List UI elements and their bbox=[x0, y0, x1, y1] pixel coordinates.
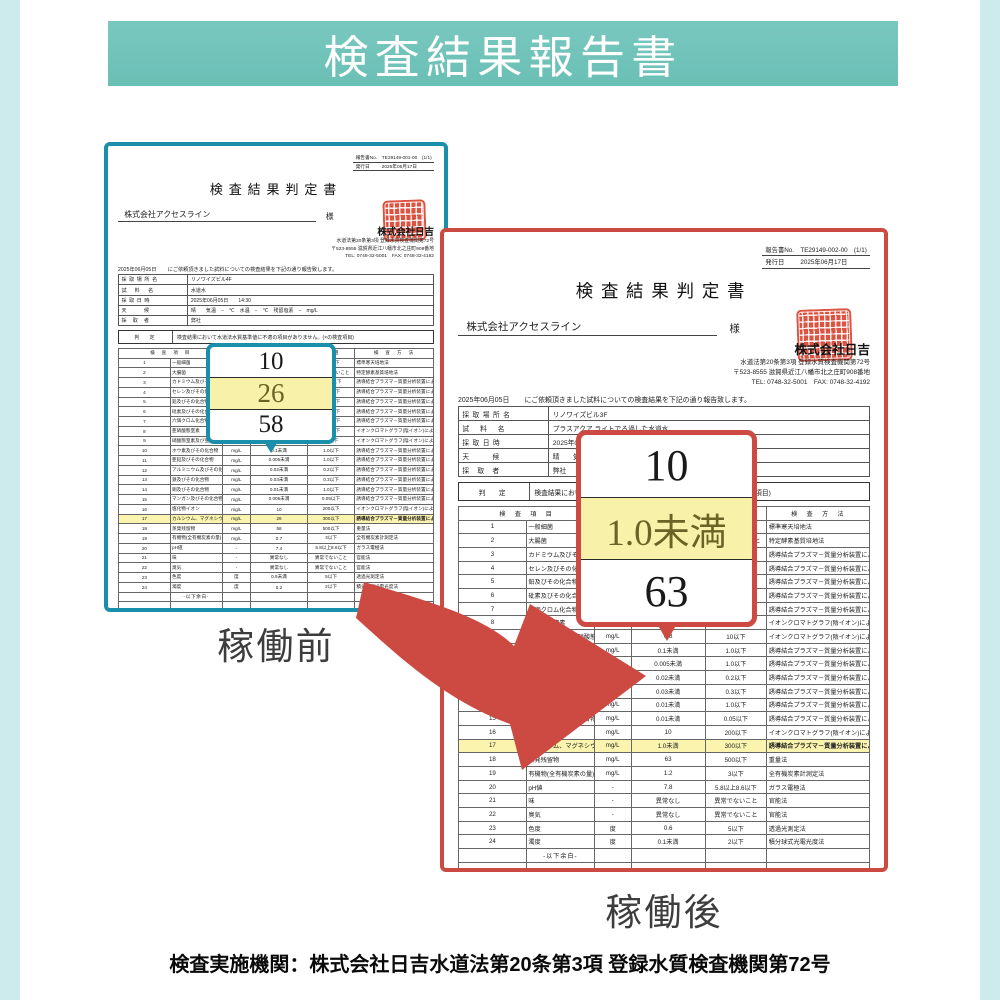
cell-item: アルミニウム及びその化合物 bbox=[526, 671, 594, 685]
cell-result: 1.2 bbox=[631, 766, 705, 780]
cell-item: マンガン及びその化合物 bbox=[526, 712, 594, 726]
cell-unit: mg/L bbox=[222, 504, 250, 514]
cell-method: 重量法 bbox=[767, 753, 870, 767]
cell-n: 3 bbox=[119, 378, 171, 388]
cell-unit: mg/L bbox=[222, 446, 250, 456]
cell-result: 0.1未満 bbox=[631, 643, 705, 657]
cell-unit: mg/L bbox=[222, 495, 250, 505]
cell-n: 1 bbox=[459, 520, 527, 534]
cell-item: 蒸発残留物 bbox=[170, 524, 222, 534]
info-label: 採 取 者 bbox=[459, 463, 549, 477]
cell-n: 24 bbox=[119, 582, 171, 592]
cell-method: 透過光測定法 bbox=[355, 573, 434, 583]
cell-result: 0.01未満 bbox=[631, 712, 705, 726]
intro-line: 2025年06月05日 にご依頼頂きました試料についての検査結果を下記の通り報告… bbox=[458, 394, 870, 404]
table-row: -以下余白- bbox=[119, 592, 434, 602]
cell-std bbox=[307, 602, 354, 611]
cell-result: 0.005未満 bbox=[251, 456, 308, 466]
cell-result: 0.02未満 bbox=[631, 671, 705, 685]
cell-unit: mg/L bbox=[222, 485, 250, 495]
table-row: -以下余白- bbox=[459, 849, 870, 863]
cell-method bbox=[767, 862, 870, 872]
intro-text: にご依頼頂きました試料についての検査結果を下記の通り報告致します。 bbox=[525, 394, 751, 404]
table-row: 19有機物(全有機炭素の量)mg/L1.23以下全有機炭素計測定法 bbox=[459, 766, 870, 780]
cell-n bbox=[119, 592, 171, 602]
issue-date-value: 2025年06月17日 bbox=[379, 162, 434, 171]
info-row: 採 取 者弊社 bbox=[119, 316, 434, 326]
cell-result: 異常なし bbox=[251, 563, 308, 573]
cell-method: 官能法 bbox=[355, 563, 434, 573]
laboratory-block: 株式会社日吉 水道法第20条第3項 登録水質検査機関第72号〒523-8555 … bbox=[118, 224, 434, 261]
cell-unit bbox=[594, 862, 631, 872]
cell-method: イオンクロマトグラフ(陰イオン)による一斉分析法 bbox=[767, 725, 870, 739]
cell-unit bbox=[594, 849, 631, 863]
highlight-callout-before: 102658 bbox=[206, 343, 336, 444]
cell-unit: mg/L bbox=[594, 725, 631, 739]
cell-method bbox=[767, 849, 870, 863]
cell-method: 誘導結合プラズマ－質量分析装置による一斉分析法 bbox=[767, 561, 870, 575]
callout-value: 10 bbox=[581, 435, 752, 497]
cell-n: 16 bbox=[119, 504, 171, 514]
info-value: リノワイズビル3F bbox=[549, 407, 870, 421]
intro-date: 2025年06月05日 bbox=[118, 266, 156, 273]
cell-item: ホウ素及びその化合物 bbox=[526, 643, 594, 657]
cell-std: 異常でないこと bbox=[307, 563, 354, 573]
cell-unit: mg/L bbox=[594, 753, 631, 767]
cell-n: 9 bbox=[119, 436, 171, 446]
cell-unit: 度 bbox=[594, 821, 631, 835]
table-row: 13鉄及びその化合物mg/L0.03未満0.3以下誘導結合プラズマ－質量分析装置… bbox=[119, 475, 434, 485]
cell-result: 7.8 bbox=[631, 780, 705, 794]
cell-std bbox=[307, 611, 354, 612]
laboratory-name: 株式会社日吉 bbox=[458, 339, 870, 358]
cell-n: 8 bbox=[459, 616, 527, 630]
cell-item: -以下余白- bbox=[170, 592, 222, 602]
col-header-method: 検 査 方 法 bbox=[767, 506, 870, 520]
cell-std: 5以下 bbox=[307, 573, 354, 583]
cell-unit: - bbox=[222, 543, 250, 553]
cell-unit: - bbox=[594, 780, 631, 794]
cell-std bbox=[705, 862, 767, 872]
cell-method: 特定酵素基質培地法 bbox=[767, 534, 870, 548]
cell-std: 異常でないこと bbox=[307, 553, 354, 563]
table-row: 15マンガン及びその化合物mg/L0.01未満0.05以下誘導結合プラズマ－質量… bbox=[459, 712, 870, 726]
intro-text: にご依頼頂きました試料についての検査結果を下記の通り報告致します。 bbox=[168, 266, 337, 273]
table-row: 24濁度度0.22以下積分球式光電光度法 bbox=[119, 582, 434, 592]
table-row: 22臭気-異常なし異常でないこと官能法 bbox=[119, 563, 434, 573]
cell-n: 12 bbox=[459, 671, 527, 685]
cell-item bbox=[170, 611, 222, 612]
table-row: 10ホウ素及びその化合物mg/L0.1未満1.0以下誘導結合プラズマ－質量分析装… bbox=[459, 643, 870, 657]
cell-std: 0.05以下 bbox=[307, 495, 354, 505]
cell-n: 14 bbox=[119, 485, 171, 495]
page-title: 検査結果報告書 bbox=[323, 21, 682, 86]
cell-std: 1.0以下 bbox=[705, 657, 767, 671]
cell-n: 18 bbox=[119, 524, 171, 534]
cell-result: 0.2 bbox=[251, 582, 308, 592]
info-label: 天 候 bbox=[459, 449, 549, 463]
callout-pointer bbox=[656, 622, 678, 641]
cell-n: 20 bbox=[459, 780, 527, 794]
cell-n: 16 bbox=[459, 725, 527, 739]
cell-n: 11 bbox=[459, 657, 527, 671]
table-row: 21味-異常なし異常でないこと官能法 bbox=[459, 794, 870, 808]
cell-result: 0.7 bbox=[251, 534, 308, 544]
info-row: 採 取 場 所 名リノワイズビル3F bbox=[459, 407, 870, 421]
info-row: 天 候晴 気温 − ℃ 水温 − ℃ 残留塩素 − mg/L bbox=[119, 305, 434, 315]
client-honorific: 様 bbox=[326, 211, 334, 222]
cell-method bbox=[355, 602, 434, 611]
cell-result: 63 bbox=[631, 753, 705, 767]
address-line: 水道法第20条第3項 登録水質検査機関第72号 bbox=[458, 358, 870, 368]
table-row bbox=[119, 602, 434, 611]
info-value: 2025年06月05日 14:30 bbox=[188, 295, 434, 305]
highlight-callout-after: 101.0未満63 bbox=[576, 430, 757, 627]
cell-n bbox=[119, 602, 171, 611]
cell-n: 17 bbox=[459, 739, 527, 753]
info-label: 採 取 場 所 名 bbox=[119, 275, 188, 285]
cell-method: 全有機炭素計測定法 bbox=[355, 534, 434, 544]
cell-method: 誘導結合プラズマ－質量分析装置による一斉分析法 bbox=[355, 446, 434, 456]
cell-result: 1.0未満 bbox=[631, 739, 705, 753]
laboratory-block: 株式会社日吉 水道法第20条第3項 登録水質検査機関第72号〒523-8555 … bbox=[458, 339, 870, 388]
cell-method: 官能法 bbox=[355, 553, 434, 563]
table-row: 16塩化物イオンmg/L10200以下イオンクロマトグラフ(陰イオン)による一斉… bbox=[119, 504, 434, 514]
cell-n bbox=[459, 849, 527, 863]
cell-result bbox=[251, 611, 308, 612]
cell-unit: mg/L bbox=[222, 524, 250, 534]
cell-n: 21 bbox=[459, 794, 527, 808]
cell-item: 臭気 bbox=[526, 808, 594, 822]
table-row: 17カルシウム、マグネシウム等(硬度)mg/L1.0未満300以下誘導結合プラズ… bbox=[459, 739, 870, 753]
cell-method: 標準寒天培地法 bbox=[355, 358, 434, 368]
issue-date-value: 2025年06月17日 bbox=[797, 256, 870, 268]
cell-item: ホウ素及びその化合物 bbox=[170, 446, 222, 456]
issue-date-label: 発行日 bbox=[762, 256, 797, 268]
cell-n: 13 bbox=[459, 684, 527, 698]
cell-result bbox=[251, 592, 308, 602]
table-row: 12アルミニウム及びその化合物mg/L0.02未満0.2以下誘導結合プラズマ－質… bbox=[119, 465, 434, 475]
cell-method: 官能法 bbox=[767, 794, 870, 808]
cell-method: 誘導結合プラズマ－質量分析装置による一斉分析法 bbox=[355, 465, 434, 475]
info-label: 採 取 場 所 名 bbox=[459, 407, 549, 421]
info-value: 弊社 bbox=[188, 316, 434, 326]
cell-item: 亜鉛及びその化合物 bbox=[526, 657, 594, 671]
cell-method: 積分球式光電光度法 bbox=[767, 835, 870, 849]
cell-method bbox=[355, 592, 434, 602]
cell-n: 2 bbox=[459, 534, 527, 548]
info-label: 採 取 者 bbox=[119, 316, 188, 326]
cell-std: 異常でないこと bbox=[705, 794, 767, 808]
cell-std: 300以下 bbox=[705, 739, 767, 753]
report-no-label: 報告書No. bbox=[353, 154, 379, 162]
cell-n: 20 bbox=[119, 543, 171, 553]
info-value: 晴 気温 − ℃ 水温 − ℃ 残留塩素 − mg/L bbox=[188, 305, 434, 315]
cell-method: ガラス電極法 bbox=[767, 780, 870, 794]
table-row bbox=[459, 862, 870, 872]
intro-date: 2025年06月05日 bbox=[458, 394, 509, 404]
cell-n: 4 bbox=[459, 561, 527, 575]
judgement-text: 検査結果において水道法水質基準値に不適の項目がありません。(×の検査項目) bbox=[173, 331, 357, 343]
cell-item: 硝酸態窒素及び亜硝酸態窒素 bbox=[526, 630, 594, 644]
cell-result bbox=[631, 849, 705, 863]
info-label: 試 料 名 bbox=[459, 421, 549, 435]
cell-result: 10 bbox=[631, 725, 705, 739]
cell-n: 23 bbox=[459, 821, 527, 835]
cell-result: 7.4 bbox=[251, 543, 308, 553]
cell-result: 0.01未満 bbox=[251, 485, 308, 495]
cell-method: 誘導結合プラズマ－質量分析装置による一斉分析法 bbox=[355, 514, 434, 524]
col-header-method: 検 査 方 法 bbox=[355, 348, 434, 358]
cell-unit bbox=[222, 592, 250, 602]
cell-unit: mg/L bbox=[594, 671, 631, 685]
cell-item: 色度 bbox=[170, 573, 222, 583]
callout-value: 58 bbox=[210, 410, 332, 440]
client-name: 株式会社アクセスライン bbox=[118, 209, 316, 222]
cell-std: 200以下 bbox=[705, 725, 767, 739]
cell-std: 5以下 bbox=[705, 821, 767, 835]
info-value: リノワイズビル4F bbox=[188, 275, 434, 285]
cell-item: カルシウム、マグネシウム等(硬度) bbox=[526, 739, 594, 753]
cell-unit bbox=[222, 602, 250, 611]
cell-unit: mg/L bbox=[594, 712, 631, 726]
table-row: 18蒸発残留物mg/L58500以下重量法 bbox=[119, 524, 434, 534]
cell-method: 誘導結合プラズマ－質量分析装置による一斉分析法 bbox=[767, 602, 870, 616]
cell-item: カルシウム、マグネシウム等(硬度) bbox=[170, 514, 222, 524]
cell-result bbox=[631, 862, 705, 872]
cell-unit: 度 bbox=[222, 573, 250, 583]
callout-value: 63 bbox=[581, 560, 752, 622]
cell-method: 誘導結合プラズマ－質量分析装置による一斉分析法 bbox=[767, 575, 870, 589]
table-row: 20pH値-7.85.8以上8.6以下ガラス電極法 bbox=[459, 780, 870, 794]
info-label: 採 取 日 時 bbox=[459, 435, 549, 449]
cell-unit: mg/L bbox=[222, 534, 250, 544]
cell-result: 0.03未満 bbox=[631, 684, 705, 698]
cell-std: 1.0以下 bbox=[307, 446, 354, 456]
cell-unit: mg/L bbox=[594, 739, 631, 753]
callout-pointer bbox=[263, 440, 279, 453]
report-number-block: 報告書No. TE29149-002-00 (1/1) 発行日 2025年06月… bbox=[762, 244, 870, 269]
cell-method: 重量法 bbox=[355, 524, 434, 534]
cell-unit: - bbox=[594, 794, 631, 808]
left-edge-strip bbox=[0, 0, 20, 1000]
cell-n: 1 bbox=[119, 358, 171, 368]
cell-n: 22 bbox=[119, 563, 171, 573]
sample-info-table: 採 取 場 所 名リノワイズビル4F試 料 名水道水採 取 日 時2025年06… bbox=[118, 274, 434, 326]
cell-item: 蒸発残留物 bbox=[526, 753, 594, 767]
cell-method: 誘導結合プラズマ－質量分析装置による一斉分析法 bbox=[767, 643, 870, 657]
cell-n: 2 bbox=[119, 368, 171, 378]
cell-n: 22 bbox=[459, 808, 527, 822]
cell-unit: 度 bbox=[222, 582, 250, 592]
cell-n: 23 bbox=[119, 573, 171, 583]
cell-n: 11 bbox=[119, 456, 171, 466]
cell-item: -以下余白- bbox=[526, 849, 594, 863]
cell-unit: mg/L bbox=[594, 766, 631, 780]
cell-unit: mg/L bbox=[594, 657, 631, 671]
table-row: 19有機物(全有機炭素の量)mg/L0.73以下全有機炭素計測定法 bbox=[119, 534, 434, 544]
cell-method: 誘導結合プラズマ－質量分析装置による一斉分析法 bbox=[355, 387, 434, 397]
cell-std: 0.05以下 bbox=[705, 712, 767, 726]
table-row: 23色度度0.65以下透過光測定法 bbox=[459, 821, 870, 835]
cell-n bbox=[119, 611, 171, 612]
cell-unit: - bbox=[222, 553, 250, 563]
cell-result: 0.005未満 bbox=[631, 657, 705, 671]
cell-std bbox=[307, 592, 354, 602]
client-name: 株式会社アクセスライン bbox=[458, 319, 717, 337]
cell-result: 0.5未満 bbox=[251, 573, 308, 583]
cell-n: 3 bbox=[459, 547, 527, 561]
cell-method: 誘導結合プラズマ－質量分析装置による一斉分析法 bbox=[767, 657, 870, 671]
cell-n: 5 bbox=[459, 575, 527, 589]
cell-item: 有機物(全有機炭素の量) bbox=[170, 534, 222, 544]
cell-method: 誘導結合プラズマ－質量分析装置による一斉分析法 bbox=[767, 589, 870, 603]
judgement-label: 判 定 bbox=[119, 331, 173, 343]
info-value: 水道水 bbox=[188, 285, 434, 295]
issue-date-label: 発行日 bbox=[353, 162, 379, 171]
cell-method: 誘導結合プラズマ－質量分析装置による一斉分析法 bbox=[767, 547, 870, 561]
table-row bbox=[119, 611, 434, 612]
cell-item: 鉄及びその化合物 bbox=[526, 684, 594, 698]
cell-method bbox=[355, 611, 434, 612]
info-row: 試 料 名水道水 bbox=[119, 285, 434, 295]
cell-item bbox=[170, 602, 222, 611]
table-row: 17カルシウム、マグネシウム等(硬度)mg/L26300以下誘導結合プラズマ－質… bbox=[119, 514, 434, 524]
cell-method: 誘導結合プラズマ－質量分析装置による一斉分析法 bbox=[355, 495, 434, 505]
cell-method: 誘導結合プラズマ－質量分析装置による一斉分析法 bbox=[767, 698, 870, 712]
table-row: 24濁度度0.1未満2以下積分球式光電光度法 bbox=[459, 835, 870, 849]
table-row: 18蒸発残留物mg/L63500以下重量法 bbox=[459, 753, 870, 767]
cell-method: 誘導結合プラズマ－質量分析装置による一斉分析法 bbox=[355, 475, 434, 485]
cell-std: 0.2以下 bbox=[705, 671, 767, 685]
cell-std: 200以下 bbox=[307, 504, 354, 514]
cell-n bbox=[459, 862, 527, 872]
cell-result: 0.1未満 bbox=[251, 446, 308, 456]
cell-item: 色度 bbox=[526, 821, 594, 835]
info-label: 採 取 日 時 bbox=[119, 295, 188, 305]
cell-std: 5.8以上8.6以下 bbox=[307, 543, 354, 553]
cell-unit: mg/L bbox=[222, 465, 250, 475]
table-row: 11亜鉛及びその化合物mg/L0.005未満1.0以下誘導結合プラズマ－質量分析… bbox=[459, 657, 870, 671]
col-header-item: 検 査 項 目 bbox=[459, 506, 595, 520]
report-no-value: TE29149-001-00 (1/1) bbox=[379, 154, 434, 162]
cell-unit: mg/L bbox=[222, 456, 250, 466]
info-row: 採 取 日 時2025年06月05日 14:30 bbox=[119, 295, 434, 305]
judgement-label: 判 定 bbox=[459, 483, 530, 500]
cell-method: 誘導結合プラズマ－質量分析装置による一斉分析法 bbox=[767, 739, 870, 753]
cell-result: 0.6 bbox=[631, 821, 705, 835]
cell-n: 14 bbox=[459, 698, 527, 712]
cell-item: 味 bbox=[526, 794, 594, 808]
table-row: 22臭気-異常なし異常でないこと官能法 bbox=[459, 808, 870, 822]
cell-std: 1.0以下 bbox=[705, 643, 767, 657]
cell-result: 26 bbox=[251, 514, 308, 524]
cell-method: イオンクロマトグラフ(陰イオン)による一斉分析法 bbox=[767, 630, 870, 644]
cell-std: 0.3以下 bbox=[705, 684, 767, 698]
label-before-operation: 稼働前 bbox=[104, 616, 448, 670]
address-line: 〒523-8555 滋賀県近江八幡市北之庄町908番地 bbox=[458, 368, 870, 378]
cell-n: 10 bbox=[459, 643, 527, 657]
cell-n: 12 bbox=[119, 465, 171, 475]
document-title: 検査結果判定書 bbox=[118, 179, 434, 198]
cell-item: 塩化物イオン bbox=[170, 504, 222, 514]
cell-method: 全有機炭素計測定法 bbox=[767, 766, 870, 780]
cell-item: 銅及びその化合物 bbox=[170, 485, 222, 495]
cell-method: イオンクロマトグラフ(陰イオン)による一斉分析法 bbox=[355, 504, 434, 514]
table-row: 20pH値-7.45.8以上8.6以下ガラス電極法 bbox=[119, 543, 434, 553]
cell-item: 鉄及びその化合物 bbox=[170, 475, 222, 485]
info-label: 試 料 名 bbox=[119, 285, 188, 295]
cell-std: 3以下 bbox=[307, 534, 354, 544]
laboratory-name: 株式会社日吉 bbox=[118, 224, 434, 238]
cell-unit: mg/L bbox=[222, 514, 250, 524]
cell-item: pH値 bbox=[170, 543, 222, 553]
cell-item bbox=[526, 862, 594, 872]
cell-unit: mg/L bbox=[594, 684, 631, 698]
table-row: 23色度度0.5未満5以下透過光測定法 bbox=[119, 573, 434, 583]
cell-method: 誘導結合プラズマ－質量分析装置による一斉分析法 bbox=[355, 397, 434, 407]
cell-std: 0.3以下 bbox=[307, 475, 354, 485]
cell-n: 6 bbox=[459, 589, 527, 603]
cell-std: 3以下 bbox=[705, 766, 767, 780]
cell-n: 7 bbox=[119, 417, 171, 427]
cell-n: 18 bbox=[459, 753, 527, 767]
cell-item: 銅及びその化合物 bbox=[526, 698, 594, 712]
cell-method: 誘導結合プラズマ－質量分析装置による一斉分析法 bbox=[355, 417, 434, 427]
cell-n: 19 bbox=[119, 534, 171, 544]
cell-std: 500以下 bbox=[705, 753, 767, 767]
cell-method: 誘導結合プラズマ－質量分析装置による一斉分析法 bbox=[355, 456, 434, 466]
laboratory-address: 水道法第20条第3項 登録水質検査機関第72号〒523-8555 滋賀県近江八幡… bbox=[458, 358, 870, 388]
cell-n: 17 bbox=[119, 514, 171, 524]
cell-method: 誘導結合プラズマ－質量分析装置による一斉分析法 bbox=[355, 378, 434, 388]
cell-method: 誘導結合プラズマ－質量分析装置による一斉分析法 bbox=[355, 407, 434, 417]
table-row: 21味-異常なし異常でないこと官能法 bbox=[119, 553, 434, 563]
cell-n: 15 bbox=[119, 495, 171, 505]
cell-item: 有機物(全有機炭素の量) bbox=[526, 766, 594, 780]
cell-method: 誘導結合プラズマ－質量分析装置による一斉分析法 bbox=[355, 485, 434, 495]
cell-unit bbox=[222, 611, 250, 612]
cell-item: 濁度 bbox=[170, 582, 222, 592]
cell-result: 58 bbox=[251, 524, 308, 534]
address-line: 〒523-8555 滋賀県近江八幡市北之庄町908番地 bbox=[118, 246, 434, 254]
cell-method: ガラス電極法 bbox=[355, 543, 434, 553]
cell-item: 亜鉛及びその化合物 bbox=[170, 456, 222, 466]
address-line: TEL: 0748-32-5001 FAX: 0748-32-4192 bbox=[118, 253, 434, 261]
cell-n: 15 bbox=[459, 712, 527, 726]
cell-n: 9 bbox=[459, 630, 527, 644]
cell-item: アルミニウム及びその化合物 bbox=[170, 465, 222, 475]
cell-std: 0.2以下 bbox=[307, 465, 354, 475]
table-row: 13鉄及びその化合物mg/L0.03未満0.3以下誘導結合プラズマ－質量分析装置… bbox=[459, 684, 870, 698]
cell-n: 19 bbox=[459, 766, 527, 780]
cell-n: 4 bbox=[119, 387, 171, 397]
cell-unit: mg/L bbox=[594, 630, 631, 644]
table-row: 11亜鉛及びその化合物mg/L0.005未満1.0以下誘導結合プラズマ－質量分析… bbox=[119, 456, 434, 466]
right-edge-strip bbox=[980, 0, 1000, 1000]
cell-n: 10 bbox=[119, 446, 171, 456]
cell-n: 21 bbox=[119, 553, 171, 563]
footer-inspection-agency: 検査実施機関：株式会社日吉水道法第20条第3項 登録水質検査機関第72号 bbox=[20, 948, 980, 977]
cell-std: 2以下 bbox=[307, 582, 354, 592]
info-label: 天 候 bbox=[119, 305, 188, 315]
cell-method: 誘導結合プラズマ－質量分析装置による一斉分析法 bbox=[767, 671, 870, 685]
page-banner: 検査結果報告書 bbox=[108, 21, 898, 86]
cell-std: 10以下 bbox=[705, 630, 767, 644]
cell-n: 6 bbox=[119, 407, 171, 417]
cell-n: 13 bbox=[119, 475, 171, 485]
callout-value: 1.0未満 bbox=[581, 497, 752, 561]
